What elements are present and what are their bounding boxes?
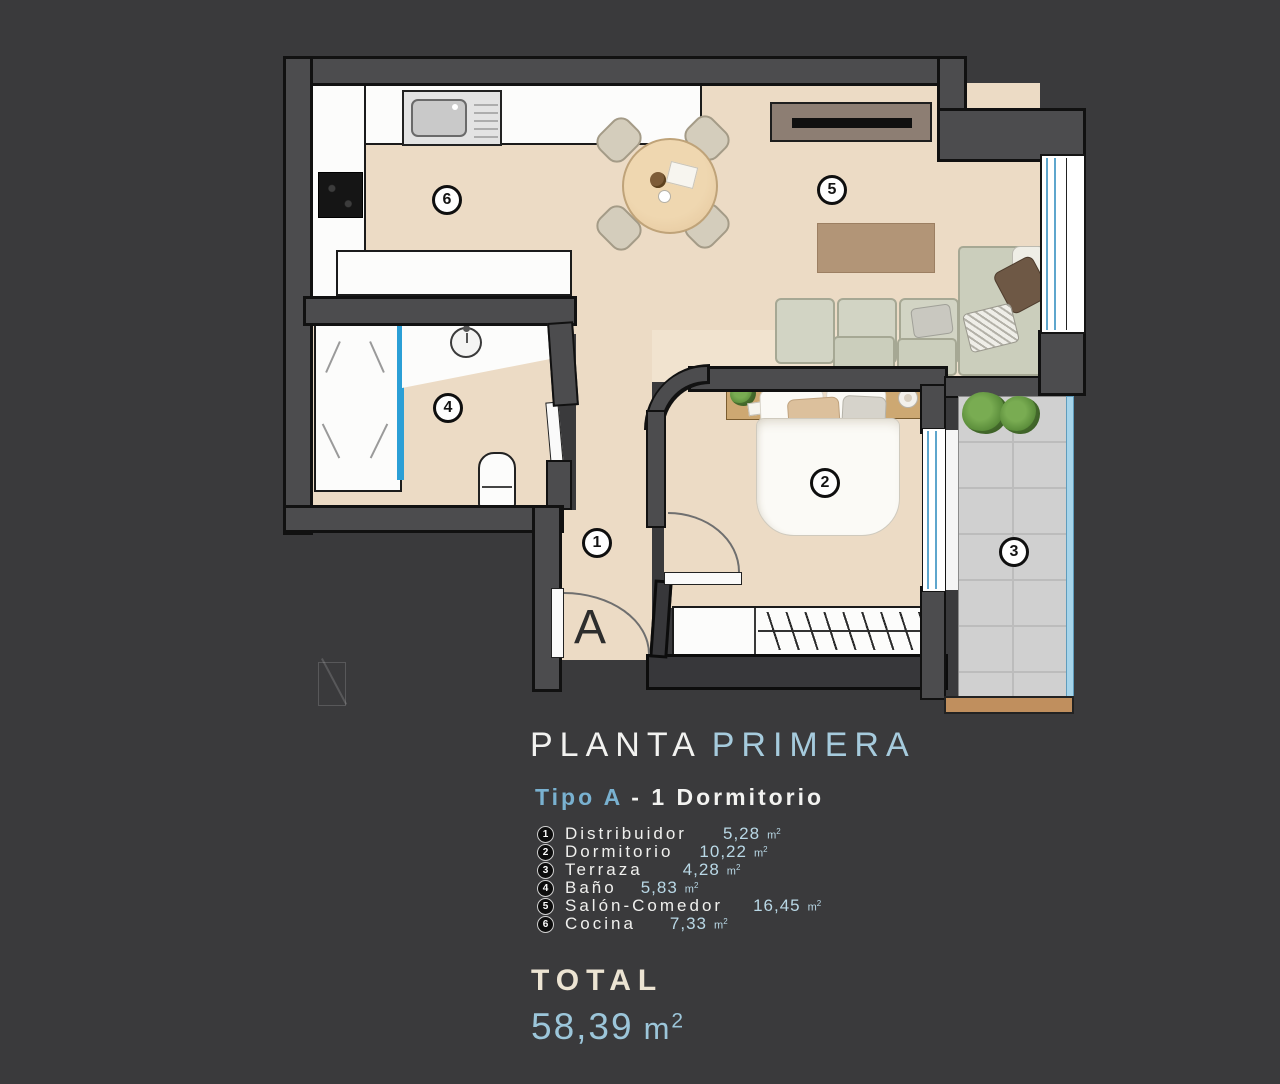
legend-num-badge: 2 [537, 844, 554, 861]
bedroom-door-leaf [664, 572, 742, 585]
wall-bottom [646, 654, 948, 690]
legend-row-bano: 4 Baño 5,83 m2 [537, 879, 821, 897]
wall-bathroom-right-lower [546, 460, 572, 510]
tv-icon [792, 118, 912, 128]
kitchen-sink-icon [402, 90, 502, 146]
room-marker-bano: 4 [433, 393, 463, 423]
wall-window-jut [1038, 330, 1086, 396]
wall-bathroom-top [303, 296, 577, 326]
wall-wardrobe-jamb [649, 579, 672, 658]
wall-step-vertical [937, 56, 967, 114]
living-rug [817, 223, 935, 273]
watermark-logo [318, 662, 346, 706]
subtitle-rest: - 1 Dormitorio [631, 784, 824, 810]
legend-room-area: 7,33 [670, 914, 707, 934]
legend-row-cocina: 6 Cocina 7,33 m2 [537, 915, 821, 933]
wall-bedroom-door-stub [646, 410, 666, 528]
wall-living-bedroom [688, 366, 948, 392]
toilet-icon [478, 452, 516, 508]
total-label: TOTAL [531, 964, 663, 998]
legend-room-name: Cocina [565, 914, 636, 934]
legend-room-name: Dormitorio [565, 842, 673, 862]
sofa-pillow-gray [910, 303, 954, 338]
legend-room-area: 16,45 [753, 896, 801, 916]
legend-num-badge: 5 [537, 898, 554, 915]
washbasin-icon [450, 327, 482, 358]
terrace-plant-icon [1000, 396, 1040, 434]
tv-unit [770, 102, 932, 142]
table-item-cup [658, 190, 671, 203]
terrace-railing [1066, 396, 1074, 704]
total-unit-sup: 2 [671, 1010, 685, 1033]
legend-unit: m [808, 901, 817, 913]
legend-room-name: Baño [565, 878, 617, 898]
terrace-window-sill [946, 430, 958, 590]
wall-bathroom-right-upper [547, 321, 579, 407]
dining-table [622, 138, 718, 234]
page-title: PLANTAPRIMERA [530, 726, 916, 765]
wall-terrace-column-upper [920, 384, 946, 434]
room-marker-distribuidor: 1 [582, 528, 612, 558]
room-marker-dormitorio: 2 [810, 468, 840, 498]
wall-top [283, 56, 967, 86]
cooktop-icon [318, 172, 363, 218]
legend-room-name: Salón-Comedor [565, 896, 723, 916]
wardrobe [672, 606, 938, 656]
legend-room-area: 5,28 [723, 824, 760, 844]
legend-unit: m [767, 829, 776, 841]
wardrobe-hangers [762, 612, 930, 650]
legend-row-dormitorio: 2 Dormitorio 10,22 m2 [537, 843, 821, 861]
legend-room-name: Terraza [565, 860, 643, 880]
legend-num-badge: 3 [537, 862, 554, 879]
kitchen-counter-lower [336, 250, 572, 296]
legend-num-badge: 4 [537, 880, 554, 897]
legend-room-area: 10,22 [699, 842, 747, 862]
sofa-back-cushion [775, 298, 835, 364]
subtitle-type: Tipo A [535, 784, 623, 810]
floor-hallway-upper [576, 330, 652, 512]
page-subtitle: Tipo A- 1 Dormitorio [535, 784, 824, 811]
legend-room-area: 4,28 [683, 860, 720, 880]
legend-row-distribuidor: 1 Distribuidor 5,28 m2 [537, 825, 821, 843]
legend-row-terraza: 3 Terraza 4,28 m2 [537, 861, 821, 879]
entrance-door-leaf [551, 588, 564, 658]
legend-unit-sup: 2 [776, 827, 780, 836]
room-marker-salon: 5 [817, 175, 847, 205]
title-part-blue: PRIMERA [712, 726, 916, 764]
wall-terrace-column-lower [920, 586, 946, 700]
legend-unit-sup: 2 [817, 899, 821, 908]
legend-unit: m [727, 865, 736, 877]
floor-plan-page: A 1 2 3 4 5 6 PLANTAPRIMERA Tipo A- 1 Do… [0, 0, 1280, 1084]
legend-unit: m [685, 883, 694, 895]
legend-row-salon-comedor: 5 Salón-Comedor 16,45 m2 [537, 897, 821, 915]
kitchen-counter-top [311, 83, 702, 145]
title-part-white: PLANTA [530, 726, 702, 764]
entrance-label: A [574, 600, 607, 655]
terrace-wood-edge [944, 696, 1074, 714]
legend-num-badge: 1 [537, 826, 554, 843]
bedroom-terrace-window [922, 428, 946, 592]
legend-unit-sup: 2 [763, 845, 767, 854]
floor-plan: A 1 2 3 4 5 6 [0, 0, 1280, 720]
legend-unit: m [714, 919, 723, 931]
legend-unit-sup: 2 [736, 863, 740, 872]
legend-num-badge: 6 [537, 916, 554, 933]
shower-tray [314, 308, 402, 492]
legend-unit: m [754, 847, 763, 859]
legend-room-area: 5,83 [641, 878, 678, 898]
room-marker-terraza: 3 [999, 537, 1029, 567]
room-legend: 1 Distribuidor 5,28 m2 2 Dormitorio 10,2… [537, 825, 821, 933]
legend-room-name: Distribuidor [565, 824, 687, 844]
legend-unit-sup: 2 [694, 881, 698, 890]
room-marker-cocina: 6 [432, 185, 462, 215]
total-unit: m [644, 1011, 672, 1046]
legend-unit-sup: 2 [723, 917, 727, 926]
wall-bathroom-bottom [283, 505, 564, 533]
total-area-number: 58,39 [531, 1006, 634, 1047]
table-item-food [650, 172, 666, 188]
living-room-window [1040, 154, 1086, 334]
total-value: 58,39m2 [531, 1006, 685, 1048]
